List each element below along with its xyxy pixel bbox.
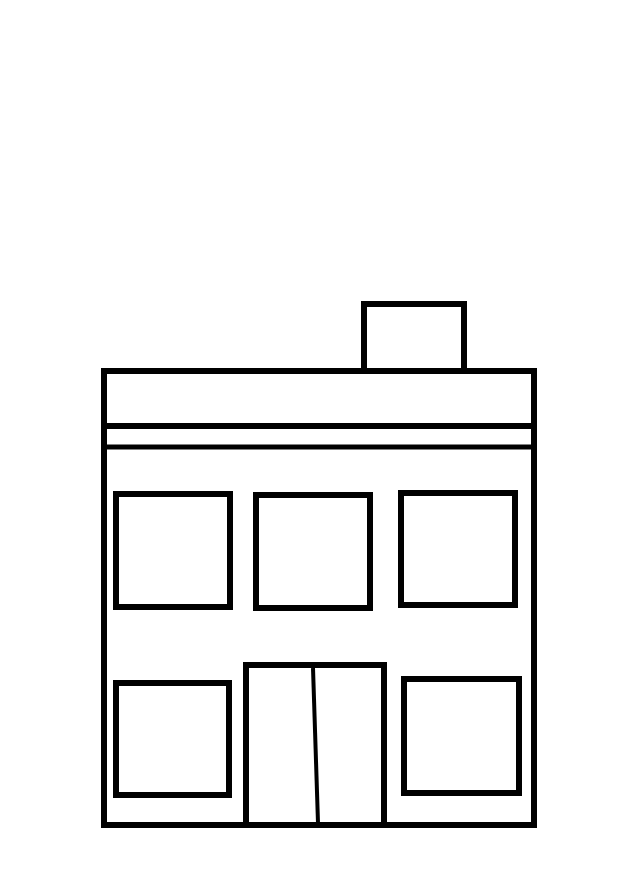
building-illustration [0, 0, 640, 881]
page-background [0, 0, 640, 881]
upper-window-left [116, 494, 230, 607]
chimney [364, 304, 464, 371]
lower-window-right [404, 679, 519, 793]
lower-window-left [116, 683, 229, 795]
upper-window-middle [256, 495, 370, 608]
upper-window-right [401, 493, 515, 605]
